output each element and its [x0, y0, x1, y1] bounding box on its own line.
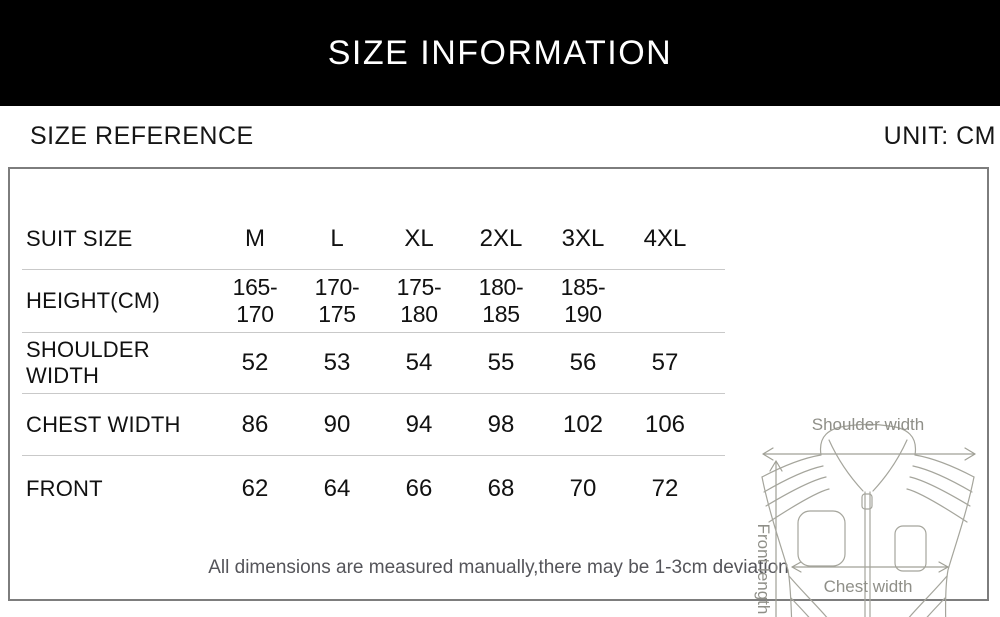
size-col-2xl: 2XL	[460, 225, 542, 253]
size-col-l: L	[296, 225, 378, 253]
size-col-xl: XL	[378, 225, 460, 253]
cell-value: 55	[460, 349, 542, 377]
size-reference-heading: SIZE REFERENCE	[30, 122, 254, 151]
cell-value: 90	[296, 411, 378, 439]
cell-value: 57	[624, 349, 706, 377]
table-row-suit-size: SUIT SIZE M L XL 2XL 3XL 4XL	[22, 208, 725, 270]
shoulder-width-label: Shoulder width	[812, 415, 924, 434]
cell-value: 70	[542, 475, 624, 503]
front-length-label: Front length	[754, 524, 773, 615]
cell-value: 72	[624, 475, 706, 503]
size-col-4xl: 4XL	[624, 225, 706, 253]
vest-line-drawing: Shoulder width Front length Chest width	[728, 344, 1000, 617]
row-label: SUIT SIZE	[22, 226, 214, 252]
banner: SIZE INFORMATION	[0, 0, 1000, 106]
cell-value: 170-175	[296, 274, 378, 328]
row-label: CHEST WIDTH	[22, 412, 214, 438]
cell-value: 64	[296, 475, 378, 503]
cell-value: 62	[214, 475, 296, 503]
table-row-chest-width: CHEST WIDTH 86 90 94 98 102 106	[22, 394, 725, 456]
size-col-3xl: 3XL	[542, 225, 624, 253]
row-label: HEIGHT(CM)	[22, 288, 214, 314]
shoulder-width-arrow-icon	[763, 448, 975, 460]
unit-label: UNIT: CM	[884, 122, 996, 151]
cell-value: 106	[624, 411, 706, 439]
row-label: SHOULDER WIDTH	[22, 337, 214, 389]
table-row-front: FRONT 62 64 66 68 70 72	[22, 456, 725, 522]
size-chart-box: SUIT SIZE M L XL 2XL 3XL 4XL HEIGHT(CM) …	[8, 167, 989, 601]
table-row-height: HEIGHT(CM) 165-170 170-175 175-180 180-1…	[22, 270, 725, 333]
cell-value: 180-185	[460, 274, 542, 328]
cell-value: 98	[460, 411, 542, 439]
cell-value: 102	[542, 411, 624, 439]
cell-value: 56	[542, 349, 624, 377]
cell-value: 54	[378, 349, 460, 377]
cell-value: 86	[214, 411, 296, 439]
size-information-page: SIZE INFORMATION SIZE REFERENCE UNIT: CM…	[0, 0, 1000, 617]
cell-value: 66	[378, 475, 460, 503]
zipper	[862, 492, 872, 617]
chest-width-label: Chest width	[824, 577, 913, 596]
vest-diagram: Shoulder width Front length Chest width	[728, 344, 1000, 617]
page-title: SIZE INFORMATION	[328, 34, 672, 73]
table-row-shoulder-width: SHOULDER WIDTH 52 53 54 55 56 57	[22, 333, 725, 394]
cell-value: 52	[214, 349, 296, 377]
cell-value: 53	[296, 349, 378, 377]
cell-value: 185-190	[542, 274, 624, 328]
cell-value: 94	[378, 411, 460, 439]
cell-value: 175-180	[378, 274, 460, 328]
cell-value: 68	[460, 475, 542, 503]
size-col-m: M	[214, 225, 296, 253]
row-label: FRONT	[22, 476, 214, 502]
cell-value: 165-170	[214, 274, 296, 328]
chest-pockets	[798, 511, 926, 571]
